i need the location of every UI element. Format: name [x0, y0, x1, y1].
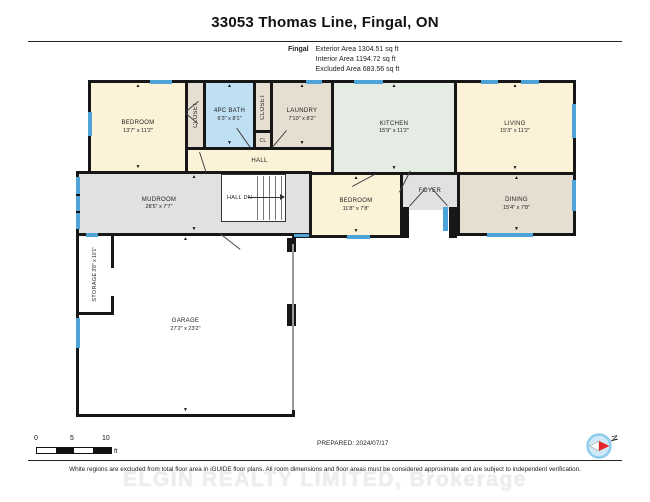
- window-left-bedroom1: [88, 112, 92, 136]
- floor-plan-page: 33053 Thomas Line, Fingal, ON Fingal Ext…: [0, 0, 650, 502]
- room-label: LAUNDRY: [287, 108, 318, 115]
- room-label: CL: [260, 138, 267, 144]
- room-label: BEDROOM: [121, 120, 154, 127]
- storage-door-opening: [109, 268, 115, 296]
- page-title: 33053 Thomas Line, Fingal, ON: [0, 14, 650, 31]
- window-left-mudroom: [76, 177, 80, 229]
- room-bath: 4PC BATH6'3" x 8'1": [203, 80, 256, 150]
- window-top-kitchen: [354, 80, 383, 84]
- stair-direction-arrow: [248, 197, 281, 198]
- entry-wall-left: [403, 207, 409, 238]
- room-label: BEDROOM: [339, 198, 372, 205]
- prepared-date: PREPARED: 2024/07/17: [317, 440, 388, 447]
- scale-label-5: 5: [70, 435, 74, 442]
- window-bottom-bedroom2: [347, 235, 370, 239]
- room-label: KITCHEN: [379, 121, 409, 128]
- entry-wall-right: [449, 207, 457, 238]
- window-top-living-a: [481, 80, 498, 84]
- interior-area: Interior Area 1194.72 sq ft: [316, 56, 400, 63]
- window-left-garage: [76, 318, 80, 348]
- project-name: Fingal: [288, 46, 309, 76]
- room-label: MUDROOM: [142, 197, 176, 204]
- room-label: 4PC BATH: [214, 108, 245, 115]
- scale-label-10: 10: [102, 435, 110, 442]
- room-dims: 7'10" x 8'2": [287, 116, 318, 122]
- excluded-area: Excluded Area 683.56 sq ft: [316, 66, 400, 73]
- room-label: STORAGE: [92, 272, 98, 301]
- exterior-area: Exterior Area 1304.51 sq ft: [316, 46, 400, 53]
- window-top-bedroom1: [150, 80, 172, 84]
- compass-icon: N: [584, 430, 624, 467]
- room-dims: 6'3" x 8'1": [214, 116, 245, 122]
- garage-thin-wall: [292, 244, 294, 410]
- window-mullion-2: [76, 211, 80, 213]
- room-label: HALL DN: [227, 195, 252, 201]
- disclaimer-text: White regions are excluded from total fl…: [0, 466, 650, 473]
- room-dims: 15'3" x 11'2": [500, 128, 530, 134]
- window-top-laundry: [306, 80, 322, 84]
- room-label: CLOSET: [260, 94, 266, 120]
- window-bottom-mudroom-left: [86, 233, 98, 237]
- room-dims: 27'2" x 23'2": [170, 326, 200, 332]
- window-bottom-mudroom-right: [294, 234, 309, 237]
- stair-arrow-head: [280, 194, 285, 200]
- scale-bar: [36, 447, 112, 454]
- window-entry-sidelight: [443, 207, 448, 231]
- scale-unit: ft: [114, 448, 118, 455]
- room-dims: 15'4" x 7'8": [503, 205, 530, 211]
- window-bottom-dining: [487, 233, 533, 237]
- room-living: LIVING15'3" x 11'2": [454, 80, 576, 175]
- window-right-dining: [572, 180, 576, 211]
- room-dining: DINING15'4" x 7'8": [457, 172, 576, 236]
- room-bedroom-1: BEDROOM13'7" x 11'2": [88, 80, 188, 174]
- scale-label-0: 0: [34, 435, 38, 442]
- header-divider: [28, 41, 622, 42]
- room-bedroom-2: BEDROOM11'8" x 7'8": [309, 172, 403, 238]
- window-right-living: [572, 104, 576, 138]
- room-kitchen: KITCHEN15'9" x 11'2": [331, 80, 457, 175]
- room-dims: 11'8" x 7'8": [339, 206, 372, 212]
- window-mullion-1: [76, 194, 80, 196]
- area-summary: Fingal Exterior Area 1304.51 sq ft Inter…: [288, 46, 399, 76]
- room-label: DINING: [503, 197, 530, 204]
- room-dims: 28'5" x 7'7": [142, 204, 176, 210]
- room-label: GARAGE: [170, 318, 200, 325]
- room-dims: 15'9" x 11'2": [379, 128, 409, 134]
- room-label: LIVING: [500, 121, 530, 128]
- room-dims: 13'7" x 11'2": [121, 128, 154, 134]
- footer-divider: [28, 460, 622, 461]
- room-dims: 3'8" x 10'1": [92, 247, 98, 272]
- room-label: HALL: [251, 158, 267, 164]
- window-top-living-b: [521, 80, 539, 84]
